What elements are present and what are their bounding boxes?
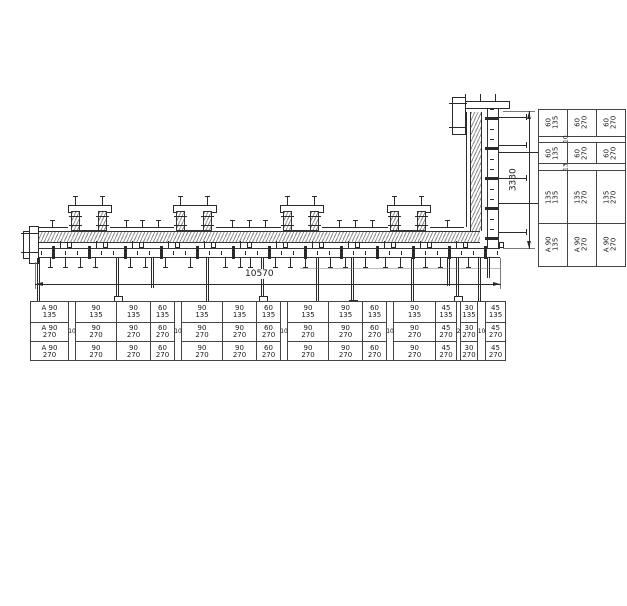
cap-bolt-head [73, 196, 78, 197]
leg-tie [308, 216, 321, 217]
dim-ext-line [503, 248, 535, 249]
filler-column: 10 [69, 302, 76, 360]
tie-stub [96, 241, 97, 248]
tie-stub-down [80, 258, 81, 267]
tie-stub-cap [223, 267, 228, 268]
panel-cell: 60270 [151, 342, 174, 362]
panel-tick [209, 251, 210, 255]
panel-cell: 60270 [568, 110, 597, 136]
formwork-plan-canvas: 10570 3330 A 90135A 90270A 9027010901359… [0, 0, 627, 606]
filler-row: 13 [539, 164, 625, 171]
panel-column: 901359027090270 [117, 302, 151, 360]
formwork-band-right-outer [487, 103, 499, 248]
panel-cell: 90270 [76, 342, 116, 362]
tie-stub-cap [370, 220, 375, 221]
panel-column: 601356027060270 [363, 302, 387, 360]
formwork-line-top [430, 227, 464, 228]
tie-stub-cap [124, 220, 129, 221]
tie-stub-up [158, 221, 159, 227]
brace [411, 258, 414, 302]
panel-column: 601356027060270 [257, 302, 281, 360]
brace [206, 258, 209, 302]
brace [447, 258, 450, 286]
panel-clamp [485, 117, 498, 120]
dim-label-height: 3330 [506, 158, 522, 202]
panel-tick [490, 129, 494, 130]
tie-stub-cap [337, 220, 342, 221]
tie-stub-down [425, 258, 426, 267]
tie-end [526, 229, 527, 235]
tie-stub-down [290, 258, 291, 267]
leg-tie [96, 225, 109, 226]
panel-tick [490, 229, 494, 230]
panel-column: 901359027090270 [223, 302, 257, 360]
pilaster-leg [203, 211, 212, 231]
tie-stub-cap [140, 220, 145, 221]
panel-cell: 90270 [223, 342, 256, 362]
panel-tick [425, 251, 426, 255]
panel-cell: 90270 [288, 323, 328, 342]
panel-column: 601356027060270 [151, 302, 175, 360]
pilaster-leg [176, 211, 185, 231]
panel-tick [490, 199, 494, 200]
panel-cell: 90135 [223, 302, 256, 323]
panel-tick [185, 251, 186, 255]
panel-cell: 90135 [117, 302, 150, 323]
panel-tick [41, 251, 42, 255]
panel-cell: 135270 [568, 171, 597, 222]
tie-stub-down [468, 258, 469, 267]
tie-stub-cap [353, 220, 358, 221]
tie-stub-cap [288, 267, 293, 268]
tie-stub-cap [128, 267, 133, 268]
tie-stub-cap [163, 267, 168, 268]
tie-stub [168, 241, 169, 248]
panel-cell: 60270 [363, 323, 386, 342]
panel-clamp [268, 246, 271, 259]
panel-tick [365, 251, 366, 255]
tie-cross [427, 242, 432, 248]
tie-stub-cap [247, 220, 252, 221]
dim-label-length: 10570 [243, 269, 276, 279]
cap-bolt [75, 197, 76, 205]
tie-stub [420, 241, 421, 248]
formwork-line-inner-vertical [466, 112, 467, 227]
panel-row: 601356027060270 [539, 143, 625, 165]
panel-cell: 60135 [363, 302, 386, 323]
panel-tick [490, 109, 494, 110]
tie-stub-cap [188, 267, 193, 268]
tie-cross [319, 242, 324, 248]
tie-stub-cap [93, 267, 98, 268]
leg-tie [415, 216, 428, 217]
panel-clamp [340, 246, 343, 259]
tie-stub-down [95, 258, 96, 267]
tie-stub-up [142, 221, 143, 227]
tie-stub-down [65, 258, 66, 267]
tie-stub-cap [48, 267, 53, 268]
tie-stub-down [250, 258, 251, 267]
panel-cell: 60135 [539, 143, 568, 164]
panel-cell: 60135 [257, 302, 280, 323]
panel-tick [281, 251, 282, 255]
panel-row: A 90135A 90270A 90270 [539, 224, 625, 266]
pilaster-inner [399, 211, 417, 231]
tie-stub-cap [50, 220, 55, 221]
formwork-line-top [322, 227, 388, 228]
panel-tick [437, 251, 438, 255]
tie-stub-up [372, 221, 373, 227]
tie-stub-up [126, 221, 127, 227]
panel-tick [317, 251, 318, 255]
tie-stub-down [330, 258, 331, 267]
tie-stub-down [400, 258, 401, 267]
tie-stub-cap [273, 267, 278, 268]
cap-bolt [394, 197, 395, 205]
panel-cell: 45135 [486, 302, 505, 323]
leg-tie [415, 225, 428, 226]
dim-arrow-left [36, 282, 43, 286]
tie-cross [355, 242, 360, 248]
tie-end [526, 142, 527, 148]
tie-stub [276, 241, 277, 248]
brace [116, 258, 119, 296]
panel-column: 301353027030270 [461, 302, 478, 360]
panel-clamp [88, 246, 91, 259]
brace [456, 258, 459, 296]
filler-column: 10 [387, 302, 394, 360]
panel-cell: 90270 [76, 323, 116, 342]
tie-rod [499, 145, 526, 146]
panel-tick [490, 219, 494, 220]
panel-column: 451354527045270 [436, 302, 457, 360]
panel-cell: 90270 [288, 342, 328, 362]
leg-tie [281, 216, 294, 217]
panel-cell: 90270 [223, 323, 256, 342]
cap-bolt [465, 94, 466, 101]
tie-stub-down [190, 258, 191, 267]
tie-stub-cap [248, 267, 253, 268]
tie-stub-cap [445, 220, 450, 221]
tie-stub-up [232, 221, 233, 227]
tie-cross [211, 242, 216, 248]
panel-cell: 60270 [597, 110, 625, 136]
panel-column: 901359027090270 [329, 302, 363, 360]
tie-cross [175, 242, 180, 248]
leg-tie [174, 225, 187, 226]
tie-stub-cap [143, 267, 148, 268]
cap-bolt [287, 197, 288, 205]
panel-cell: 90135 [288, 302, 328, 323]
cap-bolt [495, 94, 496, 101]
tie-stub-cap [230, 220, 235, 221]
tie-end [526, 175, 527, 181]
panel-cell: 60135 [151, 302, 174, 323]
tie-stub [204, 241, 205, 248]
panel-column: 901359027090270 [288, 302, 329, 360]
cap-bolt-head [178, 196, 183, 197]
panel-tick [473, 251, 474, 255]
panel-cell: 60270 [568, 143, 597, 164]
tie-rod [499, 232, 526, 233]
panel-tick [293, 251, 294, 255]
cap-bolt-head [205, 196, 210, 197]
panel-cell: 90135 [182, 302, 222, 323]
panel-tick [77, 251, 78, 255]
panel-cell: A 90270 [31, 323, 68, 342]
panel-cell: A 90270 [597, 224, 625, 266]
panel-column: A 90135A 90270A 90270 [31, 302, 69, 360]
panel-clamp [485, 177, 498, 180]
panel-tick [221, 251, 222, 255]
panel-clamp [196, 246, 199, 259]
panel-cell: 60270 [363, 342, 386, 362]
dim-arrow-up [527, 112, 531, 119]
tie-cross [139, 242, 144, 248]
cap-bolt-head [312, 196, 317, 197]
tie-stub-up [339, 221, 340, 227]
panel-row: 135135135270135270 [539, 171, 625, 223]
panel-cell: 90135 [76, 302, 116, 323]
dim-arrow-right [493, 282, 500, 286]
tie-stub-down [275, 258, 276, 267]
tie-stub-up [355, 221, 356, 227]
panel-cell: A 90135 [539, 224, 568, 266]
cap-bolt-head [419, 196, 424, 197]
tie-stub-down [365, 258, 366, 267]
panel-clamp [52, 246, 55, 259]
stop-end-tie [21, 252, 39, 253]
panel-clamp [232, 246, 235, 259]
tie-cross [103, 242, 108, 248]
pilaster-leg [310, 211, 319, 231]
filler-column: 10 [281, 302, 288, 360]
panel-clamp [485, 207, 498, 210]
tie-stub [456, 241, 457, 248]
panel-tick [353, 251, 354, 255]
panel-cell: 90270 [182, 323, 222, 342]
tie-stub-down [305, 258, 306, 267]
tie-stub [240, 241, 241, 248]
panel-cell: A 90135 [31, 302, 68, 323]
panel-cell: A 90270 [568, 224, 597, 266]
dim-line-height [529, 111, 530, 249]
tie-stub [312, 241, 313, 248]
pilaster-inner [292, 211, 310, 231]
panel-clamp [124, 246, 127, 259]
panel-cell: 90270 [117, 342, 150, 362]
panel-clamp [485, 147, 498, 150]
panel-tick [490, 169, 494, 170]
cap-bolt [180, 197, 181, 205]
tie-stub-down [385, 258, 386, 267]
cap-bolt [421, 197, 422, 205]
tie-stub-down [225, 258, 226, 267]
tie-stub [348, 241, 349, 248]
panel-tick [137, 251, 138, 255]
helper-line [300, 268, 500, 269]
formwork-line-top [216, 227, 281, 228]
panel-tick [497, 251, 498, 255]
panel-tick [173, 251, 174, 255]
filler-column: 10 [175, 302, 182, 360]
panel-cell: 60270 [597, 143, 625, 164]
panel-cell: 90270 [117, 323, 150, 342]
aux-panel-tie [449, 127, 467, 128]
panel-cell: 135135 [539, 171, 568, 222]
panel-tick [490, 189, 494, 190]
tie-stub-down [50, 258, 51, 267]
tie-stub-down [165, 258, 166, 267]
cap-bolt [480, 94, 481, 101]
panel-cell: 45270 [436, 342, 456, 362]
panel-cell: 45135 [436, 302, 456, 323]
brace [37, 258, 40, 304]
tie-stub-cap [238, 267, 243, 268]
leg-tie [96, 216, 109, 217]
brace [351, 258, 354, 300]
brace [316, 258, 319, 302]
pilaster-leg [71, 211, 80, 231]
tie-stub-down [130, 258, 131, 267]
panel-cell: 90135 [329, 302, 362, 323]
panel-clamp [160, 246, 163, 259]
panel-cell: 135270 [597, 171, 625, 222]
panel-row: 601356027060270 [539, 110, 625, 137]
tie-stub-down [145, 258, 146, 267]
tie-stub [132, 241, 133, 248]
tie-stub-down [440, 258, 441, 267]
formwork-line-top [110, 227, 174, 228]
panel-tick [461, 251, 462, 255]
tie-stub-up [52, 221, 53, 227]
stop-end-tie [21, 233, 39, 234]
leg-tie [201, 225, 214, 226]
panel-cell: 45270 [436, 323, 456, 342]
panel-column: 901359027090270 [182, 302, 223, 360]
cap-bolt [102, 197, 103, 205]
leg-tie [69, 225, 82, 226]
dim-line-length [35, 284, 501, 285]
tie-rod [499, 117, 526, 118]
leg-tie [174, 216, 187, 217]
panel-tick [329, 251, 330, 255]
dim-arrow-down [527, 241, 531, 248]
cap-bolt-head [100, 196, 105, 197]
tie-stub-up [447, 221, 448, 227]
panel-tick [113, 251, 114, 255]
leg-tie [388, 216, 401, 217]
tie-stub [60, 241, 61, 248]
tie-stub-up [265, 221, 266, 227]
leg-tie [201, 216, 214, 217]
tie-stub-cap [63, 267, 68, 268]
panel-tick [245, 251, 246, 255]
panel-tick [401, 251, 402, 255]
panel-cell: 90270 [394, 323, 435, 342]
leg-tie [69, 216, 82, 217]
leg-tie [308, 225, 321, 226]
panel-clamp [485, 237, 498, 240]
panel-cell: 60135 [539, 110, 568, 136]
tie-cross [463, 242, 468, 248]
panel-cell: 90270 [182, 342, 222, 362]
tie-cross [391, 242, 396, 248]
leg-tie [281, 225, 294, 226]
panel-cell: A 90270 [31, 342, 68, 362]
cap-bolt [314, 197, 315, 205]
panel-cell: 45270 [486, 342, 505, 362]
panel-cell: 30270 [461, 323, 477, 342]
panel-clamp [376, 246, 379, 259]
panel-cell: 90135 [394, 302, 435, 323]
wall-vertical-concrete [470, 112, 482, 231]
panel-column: 901359027090270 [76, 302, 117, 360]
panel-column: 901359027090270 [394, 302, 436, 360]
pilaster-leg [283, 211, 292, 231]
cap-bolt-head [392, 196, 397, 197]
panel-tick [65, 251, 66, 255]
panel-tick [257, 251, 258, 255]
bottom-panel-table: A 90135A 90270A 902701090135902709027090… [30, 301, 506, 361]
pilaster-inner [185, 211, 203, 231]
panel-cell: 45270 [486, 323, 505, 342]
panel-tick [149, 251, 150, 255]
tie-cross [247, 242, 252, 248]
tie-stub [384, 241, 385, 248]
panel-cell: 60270 [257, 323, 280, 342]
filler-column: 10 [478, 302, 486, 360]
panel-tick [389, 251, 390, 255]
tie-stub-cap [263, 220, 268, 221]
panel-cell: 90270 [329, 342, 362, 362]
pilaster-leg [98, 211, 107, 231]
tie-cross [67, 242, 72, 248]
pilaster-inner [80, 211, 98, 231]
tie-stub-down [240, 258, 241, 267]
tie-stub-up [249, 221, 250, 227]
panel-cell: 30135 [461, 302, 477, 323]
pilaster-leg [390, 211, 399, 231]
leg-tie [388, 225, 401, 226]
panel-cell: 60270 [257, 342, 280, 362]
panel-tick [490, 139, 494, 140]
tie-stub-cap [156, 220, 161, 221]
panel-cell: 90270 [329, 323, 362, 342]
panel-cell: 30270 [461, 342, 477, 362]
cap-bolt-head [285, 196, 290, 197]
aux-panel-tie [449, 103, 467, 104]
pilaster-leg [417, 211, 426, 231]
panel-tick [490, 159, 494, 160]
tie-stub-cap [78, 267, 83, 268]
panel-cell: 60270 [151, 323, 174, 342]
cap-bolt [207, 197, 208, 205]
formwork-line-top [35, 227, 68, 228]
panel-tick [101, 251, 102, 255]
right-panel-table: 6013560270602701060135602706027013135135… [538, 109, 626, 267]
wall-horizontal-concrete [35, 231, 480, 243]
panel-column: 451354527045270 [486, 302, 505, 360]
panel-cell: 90270 [394, 342, 435, 362]
stop-end-left-plate [23, 231, 30, 259]
tie-cross [283, 242, 288, 248]
tie-stub-down [345, 258, 346, 267]
